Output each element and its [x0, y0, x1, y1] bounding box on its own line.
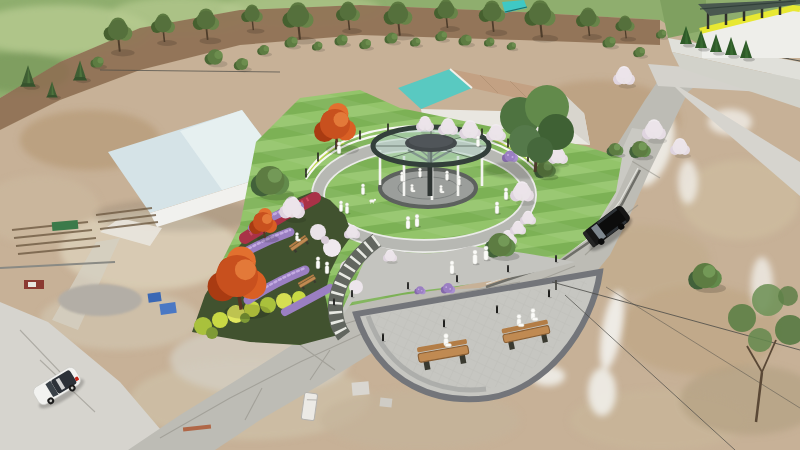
fence-post: [359, 131, 361, 140]
blue-tarp-2: [159, 302, 176, 315]
gravel-mound: [58, 284, 142, 316]
fence-post: [305, 169, 307, 178]
park-render-scene: [0, 0, 800, 450]
red-shed-door: [28, 282, 36, 287]
fence-post: [507, 139, 509, 148]
render-viewport: [0, 0, 800, 450]
blue-tarp-1: [148, 292, 162, 303]
fence-post: [317, 153, 319, 162]
